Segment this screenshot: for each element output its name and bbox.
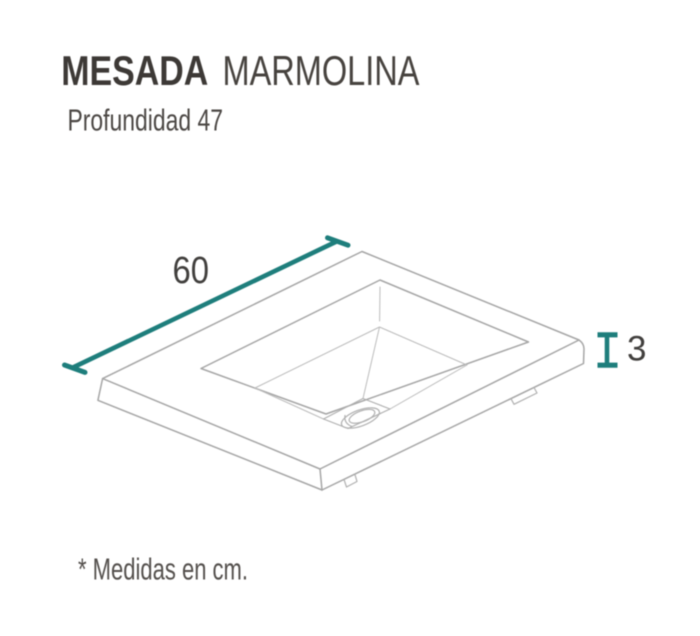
svg-text:3: 3 (627, 330, 646, 369)
svg-text:* Medidas en cm.: * Medidas en cm. (78, 552, 248, 586)
svg-text:MESADA: MESADA (61, 47, 208, 94)
svg-text:60: 60 (173, 250, 210, 292)
svg-text:MARMOLINA: MARMOLINA (223, 47, 420, 94)
svg-text:Profundidad 47: Profundidad 47 (68, 102, 224, 137)
